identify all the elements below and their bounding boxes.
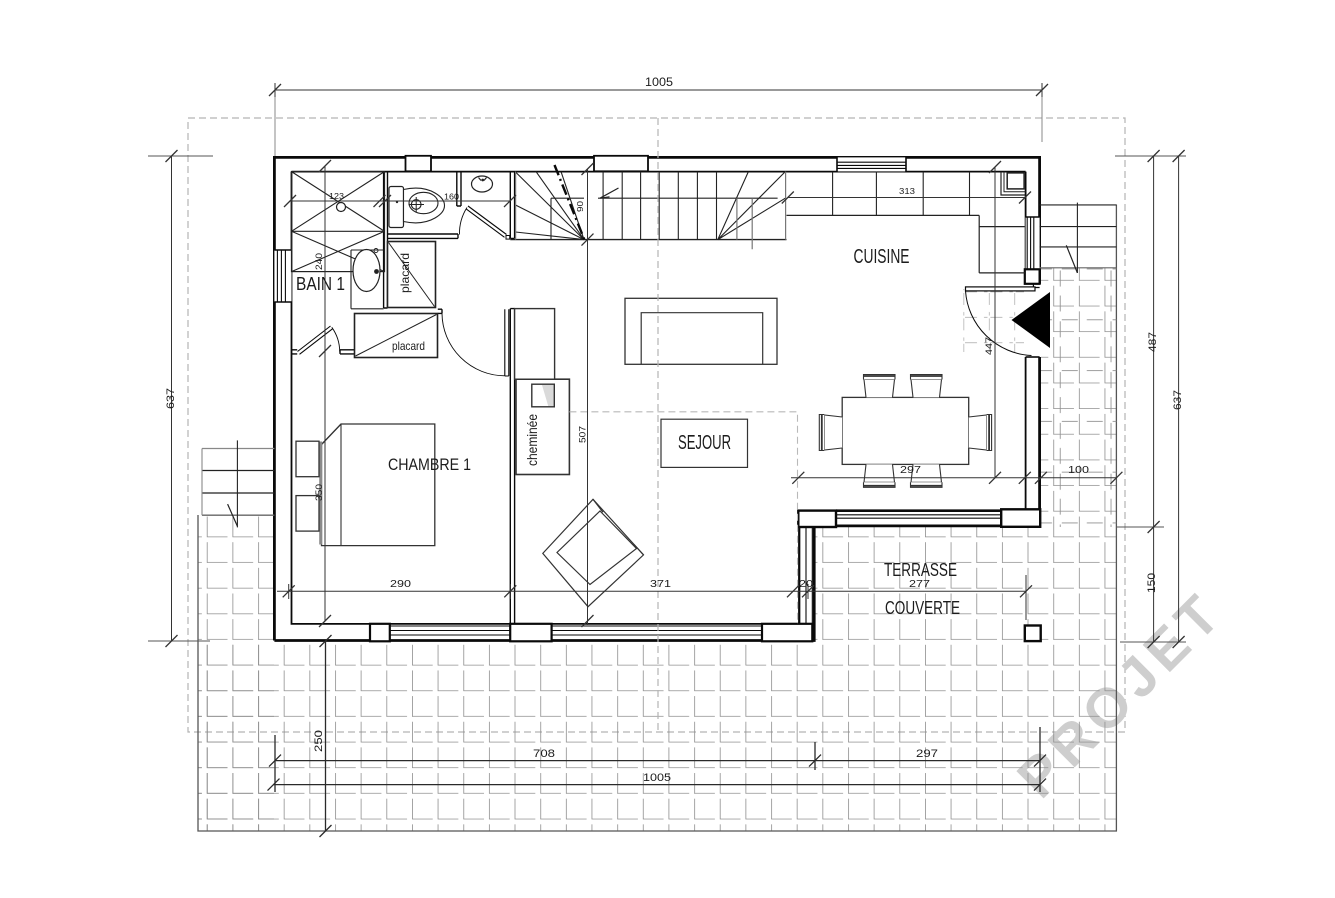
svg-text:100: 100 bbox=[1068, 464, 1089, 476]
svg-text:CHAMBRE 1: CHAMBRE 1 bbox=[388, 456, 471, 474]
svg-text:447: 447 bbox=[984, 337, 995, 355]
svg-text:20: 20 bbox=[799, 578, 813, 590]
svg-text:507: 507 bbox=[578, 426, 589, 443]
svg-text:250: 250 bbox=[313, 730, 325, 752]
svg-text:90: 90 bbox=[575, 201, 585, 212]
svg-text:313: 313 bbox=[899, 186, 915, 196]
svg-text:TERRASSE: TERRASSE bbox=[884, 560, 957, 580]
svg-text:371: 371 bbox=[650, 578, 671, 590]
svg-text:cheminée: cheminée bbox=[525, 414, 540, 466]
svg-text:637: 637 bbox=[1172, 390, 1184, 410]
svg-text:240: 240 bbox=[314, 253, 325, 270]
svg-text:BAIN 1: BAIN 1 bbox=[296, 274, 345, 294]
svg-text:placard: placard bbox=[392, 339, 425, 353]
svg-text:350: 350 bbox=[314, 484, 325, 501]
svg-text:160: 160 bbox=[444, 192, 459, 202]
svg-text:1005: 1005 bbox=[645, 77, 673, 89]
svg-text:CUISINE: CUISINE bbox=[854, 246, 910, 268]
svg-text:1005: 1005 bbox=[643, 772, 671, 784]
svg-text:297: 297 bbox=[900, 464, 921, 476]
svg-text:297: 297 bbox=[916, 748, 938, 760]
svg-text:123: 123 bbox=[329, 191, 344, 201]
svg-text:290: 290 bbox=[390, 578, 411, 590]
svg-text:637: 637 bbox=[165, 388, 177, 409]
svg-text:COUVERTE: COUVERTE bbox=[885, 598, 960, 618]
svg-text:708: 708 bbox=[533, 748, 555, 760]
svg-text:placard: placard bbox=[398, 253, 412, 293]
svg-text:487: 487 bbox=[1147, 332, 1159, 352]
svg-text:SEJOUR: SEJOUR bbox=[678, 432, 731, 454]
svg-text:150: 150 bbox=[1146, 573, 1158, 593]
